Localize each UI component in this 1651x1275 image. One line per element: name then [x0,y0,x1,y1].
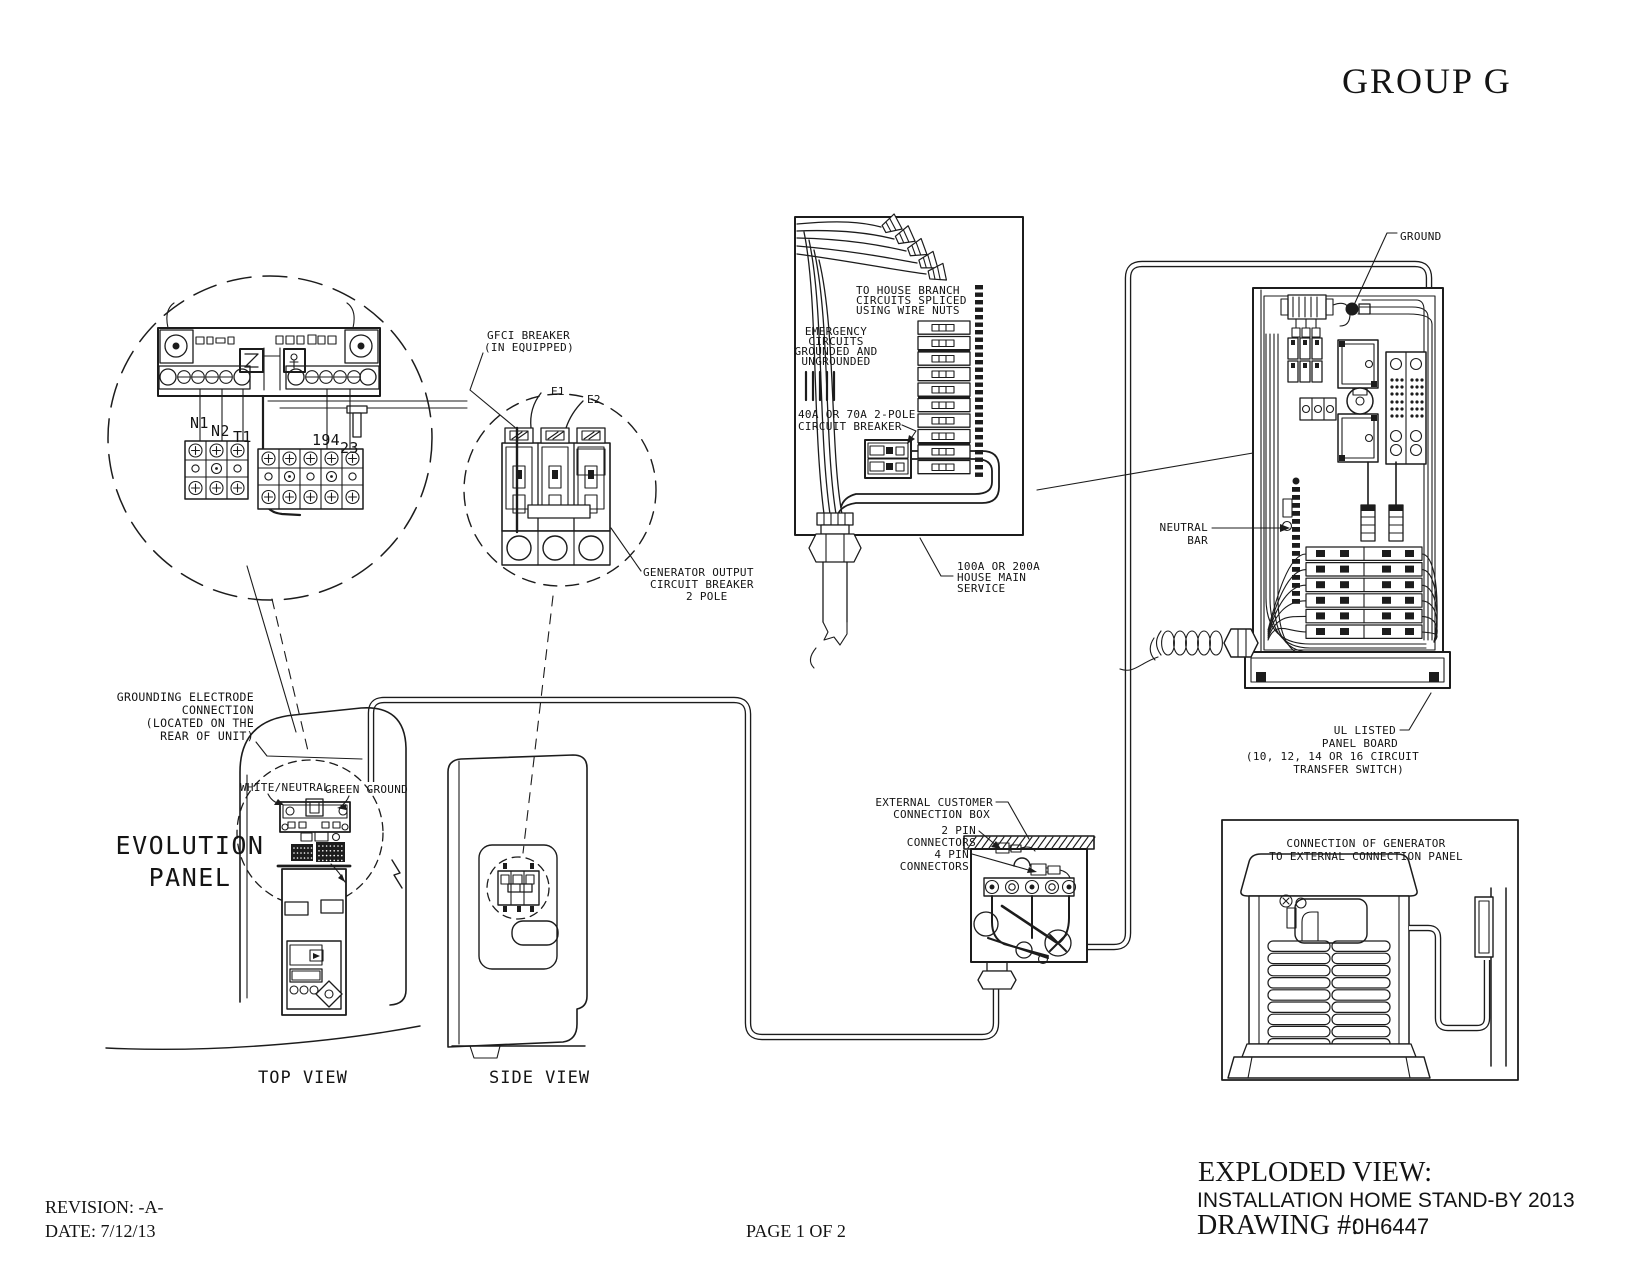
label-green-ground: GREEN GROUND [325,783,408,796]
label-ul-2: PANEL BOARD [1322,737,1398,750]
label-e1: E1 [551,385,565,398]
conduit-fitting [809,513,861,668]
label-gen-connection-2: TO EXTERNAL CONNECTION PANEL [1269,850,1463,863]
label-ul-3: (10, 12, 14 OR 16 CIRCUIT [1246,750,1419,763]
title-page-number: PAGE 1 OF 2 [746,1221,846,1241]
label-gen-output-3: 2 POLE [686,590,728,603]
label-grounding-1: GROUNDING ELECTRODE [117,690,254,704]
label-white-neutral: WHITE/NEUTRAL [240,781,330,794]
label-grounding-3: (LOCATED ON THE [146,716,254,730]
drawing-page: N1 N2 T1 194 23 GFCI BREAKER (IN EQUIPPE… [0,0,1651,1275]
title-drawing-number: 0H6447 [1352,1214,1429,1239]
transfer-switch-panel [1120,288,1450,688]
label-e2: E2 [587,393,601,406]
label-house-main-3: SERVICE [957,582,1005,595]
label-emergency-4: UNGROUNDED [801,355,870,368]
wiring-diagram-svg: N1 N2 T1 194 23 GFCI BREAKER (IN EQUIPPE… [0,0,1651,1275]
label-gfci-2: (IN EQUIPPED) [484,341,574,354]
title-group: GROUP G [1342,61,1512,101]
title-drawing-label: DRAWING #: [1197,1210,1359,1241]
title-date: DATE: 7/12/13 [45,1221,156,1241]
external-customer-connection-box [964,836,1095,989]
label-top-view: TOP VIEW [258,1068,348,1088]
title-exploded-view: EXPLODED VIEW: [1198,1157,1432,1188]
flex-conduit [1120,629,1258,670]
label-4pin-2: CONNECTORS [900,860,969,873]
label-23: 23 [340,439,359,457]
title-installation: INSTALLATION HOME STAND-BY 2013 [1197,1189,1575,1212]
label-external-box-2: CONNECTION BOX [893,808,990,821]
label-grounding-4: REAR OF UNIT) [160,729,254,743]
label-side-view: SIDE VIEW [489,1068,590,1088]
label-t1: T1 [233,428,252,446]
title-revision: REVISION: -A- [45,1197,164,1217]
label-house-branch-3: USING WIRE NUTS [856,304,960,317]
label-194: 194 [312,431,340,449]
terminal-detail-circle [108,276,467,600]
label-ground: GROUND [1400,230,1442,243]
label-neutral-bar-1: NEUTRAL [1160,521,1209,534]
label-evolution-2: PANEL [149,863,232,892]
label-ul-1: UL LISTED [1334,724,1396,737]
label-pole-breaker-2: CIRCUIT BREAKER [798,420,902,433]
label-gen-connection-1: CONNECTION OF GENERATOR [1286,837,1445,850]
label-ul-4: TRANSFER SWITCH) [1293,763,1404,776]
output-breaker-side [498,863,539,912]
two-pole-breaker [865,440,911,478]
label-neutral-bar-2: BAR [1187,534,1208,547]
label-evolution-1: EVOLUTION [116,831,265,860]
gfci-breaker-detail [464,393,656,586]
label-grounding-2: CONNECTION [182,703,254,717]
generator-side-view [448,755,587,1058]
label-n1: N1 [190,414,209,432]
label-n2: N2 [211,422,230,440]
